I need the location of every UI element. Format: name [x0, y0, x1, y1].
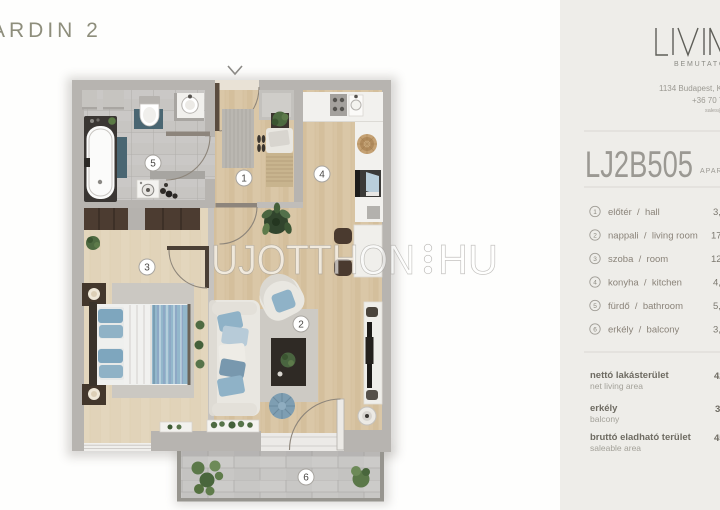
svg-text:5: 5	[150, 159, 156, 170]
svg-text:45: 45	[714, 433, 720, 444]
svg-text:nettó lakásterület: nettó lakásterület	[590, 370, 669, 381]
svg-text:BEMUTATÓLAKÁS: BEMUTATÓLAKÁS	[674, 59, 720, 68]
svg-text:17,2: 17,2	[711, 231, 720, 242]
svg-text:szoba / room: szoba / room	[608, 254, 668, 265]
svg-text:4,2: 4,2	[713, 278, 720, 289]
svg-text:3,6: 3,6	[713, 207, 720, 218]
svg-text:APARTMAN: APARTMAN	[700, 168, 720, 175]
svg-text:HU: HU	[438, 236, 498, 283]
svg-text:4: 4	[593, 280, 597, 287]
svg-text:3,: 3,	[715, 404, 720, 415]
svg-text:sales@lk: sales@lk	[705, 108, 720, 114]
svg-text:1: 1	[241, 174, 247, 185]
svg-text:6: 6	[303, 473, 309, 484]
svg-text:konyha / kitchen: konyha / kitchen	[608, 278, 682, 289]
svg-text:3: 3	[593, 256, 597, 263]
svg-text:LJ2B505: LJ2B505	[585, 144, 693, 185]
svg-text:5: 5	[593, 303, 597, 310]
svg-text:4: 4	[319, 170, 325, 181]
svg-text:3,4: 3,4	[713, 325, 720, 336]
svg-text:nappali / living room: nappali / living room	[608, 231, 698, 242]
svg-text:net living area: net living area	[590, 381, 643, 391]
svg-text:saleable area: saleable area	[590, 443, 641, 453]
svg-text:UJOTTHON: UJOTTHON	[211, 236, 415, 283]
svg-text:erkély / balcony: erkély / balcony	[608, 325, 680, 336]
svg-text:+36 70 70: +36 70 70	[692, 96, 720, 105]
svg-text:erkély: erkély	[590, 403, 618, 414]
svg-text:fürdő / bathroom: fürdő / bathroom	[608, 301, 683, 312]
svg-text:5,1: 5,1	[713, 301, 720, 312]
svg-text:balcony: balcony	[590, 414, 620, 424]
svg-text:1: 1	[593, 209, 597, 216]
svg-text:3: 3	[144, 263, 150, 274]
svg-text:előtér / hall: előtér / hall	[608, 207, 660, 218]
svg-text:42: 42	[714, 371, 720, 382]
svg-text:1134 Budapest, Kassák La: 1134 Budapest, Kassák La	[659, 84, 720, 93]
svg-text:6: 6	[593, 327, 597, 334]
svg-text:2: 2	[593, 233, 597, 240]
svg-text:ARDIN 2: ARDIN 2	[0, 19, 102, 42]
svg-text:12,1: 12,1	[711, 254, 720, 265]
svg-text:bruttó eladható terület: bruttó eladható terület	[590, 432, 692, 443]
svg-text:2: 2	[298, 320, 304, 331]
